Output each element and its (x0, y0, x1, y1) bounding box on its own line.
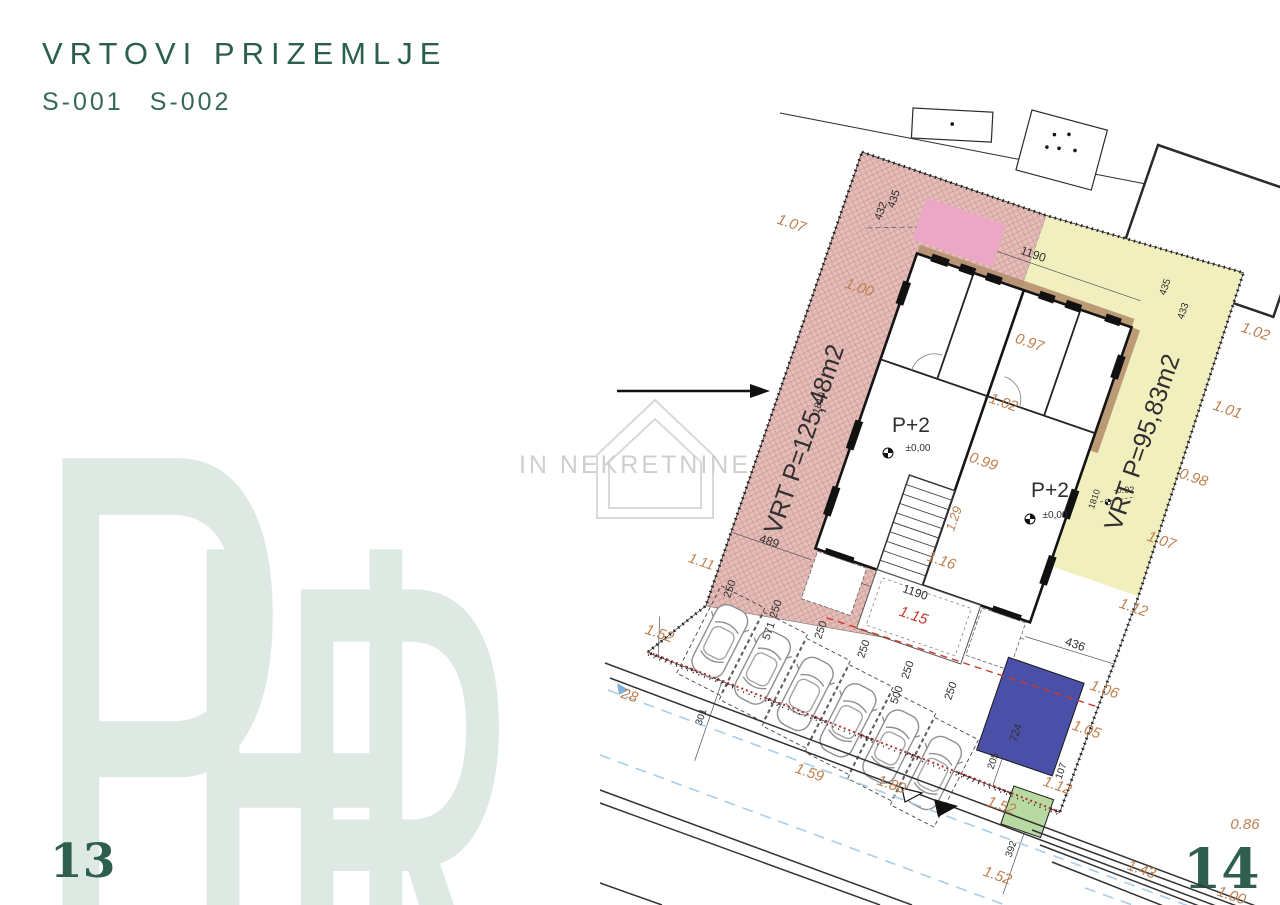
neighbour-building (1016, 110, 1107, 190)
dim-label: 1.12 (1041, 773, 1075, 799)
dim-label: -0.02 (1114, 485, 1135, 495)
brochure-page: { "header": { "title": "VRTOVI PRIZEMLJE… (0, 0, 1280, 905)
dim-label: 0.98 (1177, 465, 1211, 491)
pointer-arrow (617, 384, 770, 398)
dim-label: P+2 (892, 414, 930, 437)
dim-label: 1.52 (981, 863, 1015, 889)
dim-label: 392 (1004, 839, 1020, 859)
dim-label: 250 (900, 659, 917, 680)
dim-label: 1.06 (1088, 677, 1122, 703)
dim-label: ±0,00 (1043, 510, 1068, 521)
dim-label: ±0,00 (906, 443, 931, 454)
realtor-watermark: IN NEKRETNINE (519, 400, 751, 518)
watermark-text: IN NEKRETNINE (519, 451, 751, 479)
dim-label: 1.12 (1117, 595, 1151, 621)
dim-label: P+2 (1031, 479, 1069, 502)
dim-label: 500 (889, 684, 906, 705)
dim-label: 250 (943, 680, 960, 701)
dim-label: 1.07 (775, 211, 809, 237)
dim-label: 1.11 (687, 549, 717, 573)
dim-label: 436 (1064, 634, 1088, 654)
dim-label: 250 (856, 638, 873, 659)
dim-label: 0.86 (1230, 816, 1260, 833)
dim-label: 1.01 (1211, 397, 1244, 423)
site-plan: IN NEKRETNINE (0, 0, 1280, 905)
dim-label: 1.02 (1239, 319, 1273, 345)
dim-label: 1.59 (793, 760, 827, 786)
dim-label: 1.00 (1215, 883, 1249, 905)
